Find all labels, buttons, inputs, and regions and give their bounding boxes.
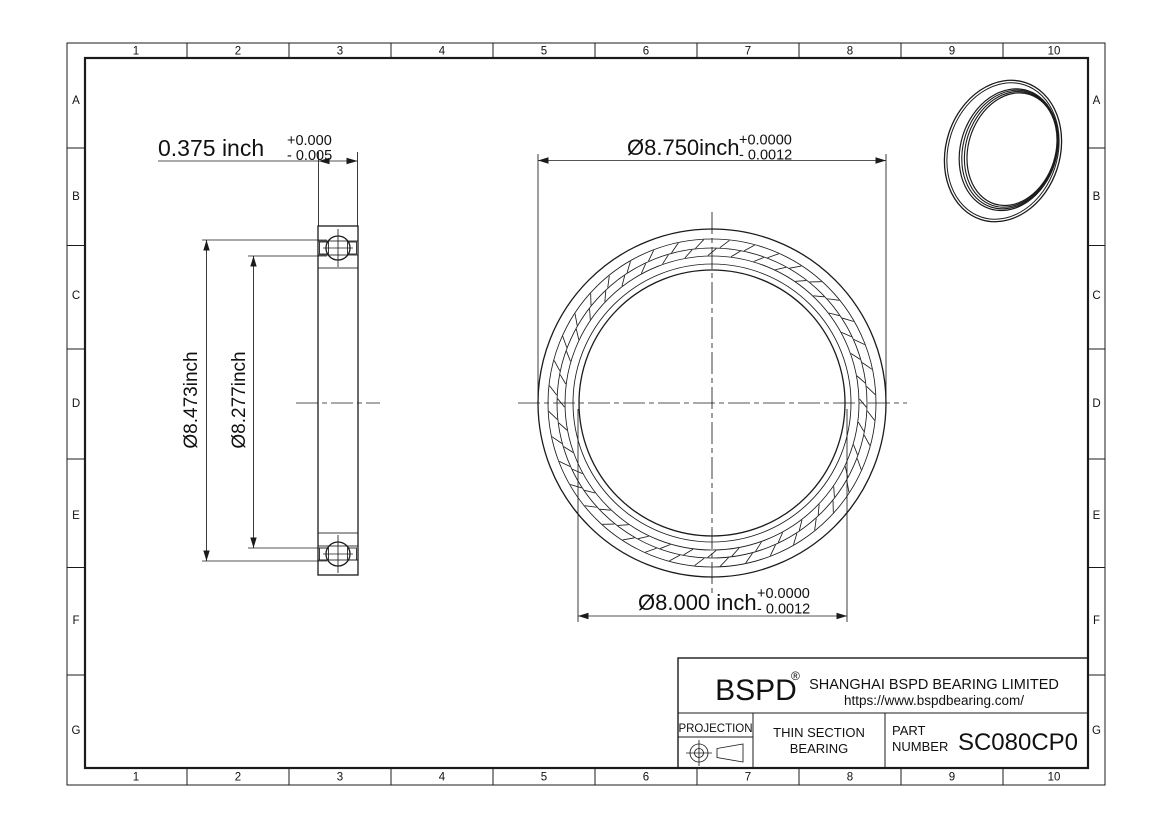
part-label-line2: NUMBER xyxy=(892,739,948,754)
grid-label: 6 xyxy=(643,772,649,784)
grid-label: E xyxy=(72,510,80,522)
grid-label: 10 xyxy=(1048,46,1061,58)
grid-label: 5 xyxy=(541,772,547,784)
front-view: Ø8.750inch +0.0000 - 0.0012 Ø8.000 inch … xyxy=(518,133,907,623)
grid-label: 4 xyxy=(439,772,446,784)
projection-label: PROJECTION xyxy=(678,723,752,735)
product-type-line2: BEARING xyxy=(790,741,849,756)
grid-label: D xyxy=(72,398,80,410)
grid-label: C xyxy=(72,290,80,302)
grid-label: A xyxy=(72,95,80,107)
grid-label: A xyxy=(1093,95,1101,107)
outer-race-dimension: Ø8.473inch xyxy=(181,240,327,561)
bore-dia-tol-plus: +0.0000 xyxy=(757,586,810,602)
grid-label: 3 xyxy=(337,772,343,784)
grid-label: 6 xyxy=(643,46,649,58)
grid-label: G xyxy=(72,725,81,737)
width-dim-value: 0.375 inch xyxy=(158,135,264,161)
title-block: BSPD ® SHANGHAI BSPD BEARING LIMITED htt… xyxy=(678,658,1088,768)
grid-label: 8 xyxy=(847,46,853,58)
grid-label: 9 xyxy=(949,772,955,784)
grid-label: 1 xyxy=(133,772,139,784)
part-number: SC080CP0 xyxy=(958,729,1078,756)
bspd-logo: BSPD xyxy=(715,674,797,707)
grid-column-labels-bottom: 1 2 3 4 5 6 7 8 9 10 xyxy=(133,772,1061,784)
grid-label: 7 xyxy=(745,772,751,784)
grid-label: F xyxy=(72,615,79,627)
grid-row-dividers xyxy=(67,148,1105,675)
grid-label: G xyxy=(1092,725,1101,737)
outer-dia-tol-plus: +0.0000 xyxy=(739,133,792,149)
grid-label: 1 xyxy=(133,46,139,58)
grid-label: 8 xyxy=(847,772,853,784)
outer-dia-tol-minus: - 0.0012 xyxy=(739,148,792,164)
grid-label: 5 xyxy=(541,46,547,58)
grid-label: B xyxy=(72,191,80,203)
part-label-line1: PART xyxy=(892,723,926,738)
grid-label: E xyxy=(1093,510,1101,522)
bore-dia-tol-minus: - 0.0012 xyxy=(757,602,810,618)
grid-row-labels-left: A B C D E F G xyxy=(72,95,81,737)
bore-dia-value: Ø8.000 inch xyxy=(638,590,757,615)
grid-label: C xyxy=(1092,290,1100,302)
grid-column-labels-top: 1 2 3 4 5 6 7 8 9 10 xyxy=(133,46,1061,58)
grid-label: 7 xyxy=(745,46,751,58)
width-dim-tol-minus: - 0.005 xyxy=(287,148,332,164)
projection-symbol-icon xyxy=(686,740,743,766)
grid-row-labels-right: A B C D E F G xyxy=(1092,95,1101,737)
grid-label: 4 xyxy=(439,46,446,58)
grid-label: 3 xyxy=(337,46,343,58)
grid-label: F xyxy=(1093,615,1100,627)
grid-label: D xyxy=(1092,398,1100,410)
isometric-view xyxy=(927,65,1080,237)
section-view: 0.375 inch +0.000 - 0.005 xyxy=(158,133,380,575)
grid-label: 9 xyxy=(949,46,955,58)
grid-label: 2 xyxy=(235,772,241,784)
drawing-sheet: 1 2 3 4 5 6 7 8 9 10 1 2 3 4 5 6 7 8 9 1… xyxy=(0,0,1170,827)
inner-race-dim-value: Ø8.277inch xyxy=(229,351,250,448)
section-width-dimension: 0.375 inch +0.000 - 0.005 xyxy=(158,133,358,226)
grid-label: 10 xyxy=(1048,772,1061,784)
outer-dia-value: Ø8.750inch xyxy=(627,135,740,160)
section-body xyxy=(296,226,380,575)
grid-label: B xyxy=(1093,191,1101,203)
registered-mark: ® xyxy=(791,669,800,683)
company-name: SHANGHAI BSPD BEARING LIMITED xyxy=(809,677,1059,693)
drawing-canvas: 1 2 3 4 5 6 7 8 9 10 1 2 3 4 5 6 7 8 9 1… xyxy=(0,0,1170,827)
outer-race-dim-value: Ø8.473inch xyxy=(181,351,202,448)
grid-label: 2 xyxy=(235,46,241,58)
company-website: https://www.bspdbearing.com/ xyxy=(844,693,1024,708)
width-dim-tol-plus: +0.000 xyxy=(287,133,332,149)
product-type-line1: THIN SECTION xyxy=(773,725,865,740)
inner-race-dimension: Ø8.277inch xyxy=(229,256,327,548)
